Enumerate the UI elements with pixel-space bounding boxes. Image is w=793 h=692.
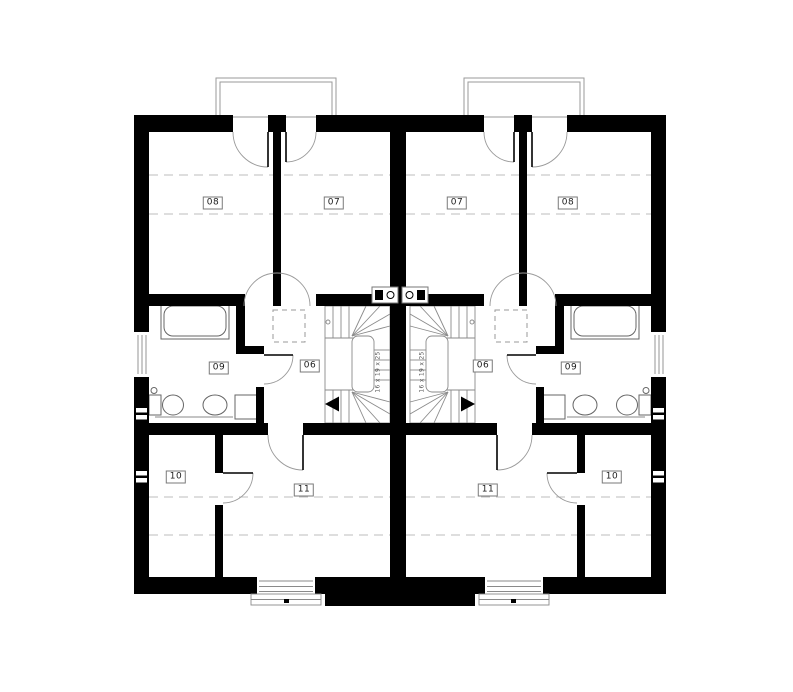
room-label-11-right: 11	[478, 484, 498, 497]
room-label-08-left: 08	[203, 197, 223, 210]
window-bottom-right	[479, 577, 549, 605]
window-right-bathroom	[651, 332, 666, 377]
floor-plan-drawing	[0, 0, 793, 692]
room-label-06-right: 06	[473, 360, 493, 373]
stair-direction-arrow-left	[325, 397, 339, 412]
party-wall	[390, 115, 406, 594]
room-label-10-left: 10	[166, 471, 186, 484]
room-label-06-left: 06	[300, 360, 320, 373]
toilet-right	[617, 388, 652, 416]
room-label-07-left: 07	[324, 197, 344, 210]
washbasin-left	[203, 395, 227, 415]
room-label-10-right: 10	[602, 471, 622, 484]
bathtub-left	[161, 303, 229, 339]
stair-note-right: 16 x 19 x 25	[419, 351, 426, 392]
room-label-09-left: 09	[209, 362, 229, 375]
balcony-outline-right	[464, 78, 584, 117]
toilet-left	[149, 388, 184, 416]
balcony-outline-left	[216, 78, 336, 117]
floor-plan-canvas: 08 07 07 08 09 06 06 09 10 11 11 10 16 x…	[0, 0, 793, 692]
shower-tray-left	[235, 395, 259, 419]
stair-note-left: 16 x 19 x 25	[375, 351, 382, 392]
room-label-07-right: 07	[447, 197, 467, 210]
window-left-bathroom	[134, 332, 149, 377]
stair-direction-arrow-right	[461, 397, 475, 412]
room-label-08-right: 08	[558, 197, 578, 210]
walls	[134, 115, 666, 606]
room-label-11-left: 11	[294, 484, 314, 497]
bathtub-right	[571, 303, 639, 339]
window-bottom-left	[251, 577, 321, 605]
shower-tray-right	[541, 395, 565, 419]
room-label-09-right: 09	[561, 362, 581, 375]
washbasin-right	[573, 395, 597, 415]
